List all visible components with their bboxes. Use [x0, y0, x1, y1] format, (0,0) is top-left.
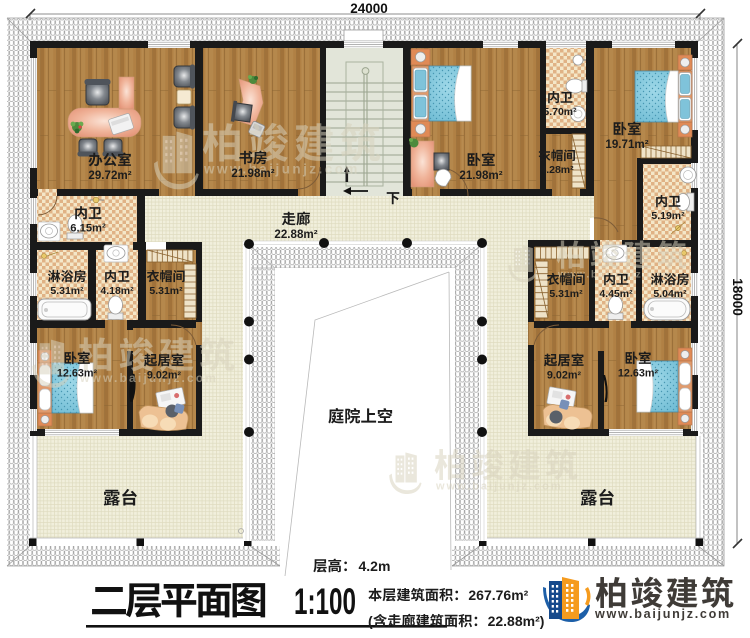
- svg-text:5.31m²: 5.31m²: [50, 285, 84, 297]
- svg-text:5.31m²: 5.31m²: [549, 288, 583, 300]
- svg-text:18000: 18000: [730, 278, 745, 316]
- svg-text:(: (: [368, 613, 373, 629]
- svg-text:267.76m²: 267.76m²: [468, 587, 528, 603]
- svg-text:22.88m²: 22.88m²: [274, 228, 317, 241]
- svg-text:www.baijunjz.com: www.baijunjz.com: [435, 481, 563, 493]
- svg-text:www.baijunjz.com: www.baijunjz.com: [594, 607, 731, 621]
- svg-text:6.15m²: 6.15m²: [70, 223, 106, 235]
- svg-text:www.baijunjz.com: www.baijunjz.com: [203, 162, 360, 177]
- svg-text:24000: 24000: [350, 1, 388, 16]
- svg-text:5.19m²: 5.19m²: [651, 210, 685, 222]
- svg-text:12.63m²: 12.63m²: [618, 367, 659, 379]
- svg-text:9.02m²: 9.02m²: [147, 369, 182, 381]
- svg-text:4.18m²: 4.18m²: [100, 285, 134, 297]
- svg-text:21.98m²: 21.98m²: [459, 169, 502, 182]
- svg-text:21.98m²: 21.98m²: [231, 167, 274, 180]
- svg-text:1:100: 1:100: [294, 581, 356, 622]
- svg-text:5.04m²: 5.04m²: [653, 288, 687, 300]
- svg-text:4.2m: 4.2m: [359, 558, 391, 574]
- svg-text:5.31m²: 5.31m²: [149, 285, 183, 297]
- svg-text:12.63m²: 12.63m²: [57, 367, 98, 379]
- svg-text:4.45m²: 4.45m²: [599, 288, 633, 300]
- svg-text:22.88m²): 22.88m²): [488, 613, 545, 629]
- svg-text:5.70m²: 5.70m²: [543, 106, 577, 118]
- svg-text:19.71m²: 19.71m²: [605, 138, 648, 151]
- svg-text:29.72m²: 29.72m²: [88, 169, 131, 182]
- svg-text:9.02m²: 9.02m²: [547, 369, 582, 381]
- svg-text:4.28m²: 4.28m²: [540, 164, 574, 176]
